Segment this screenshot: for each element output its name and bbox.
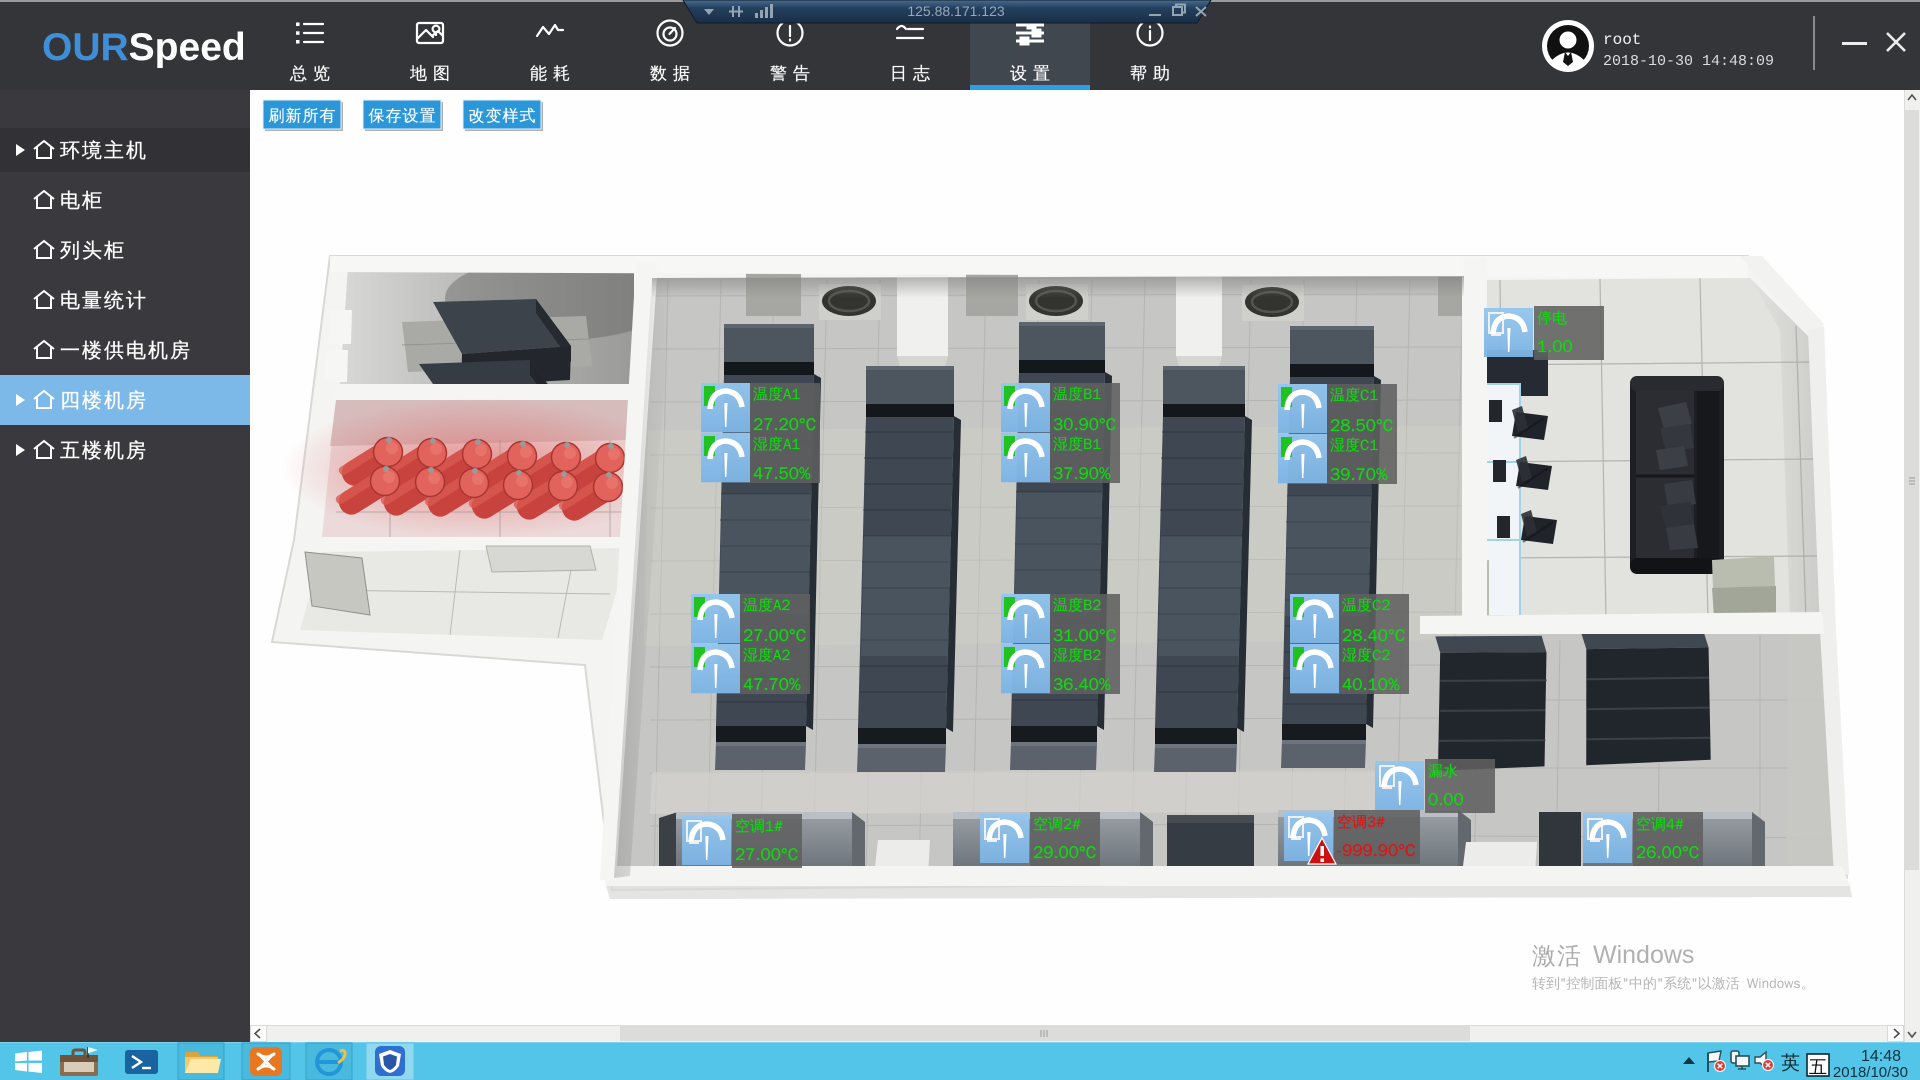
svg-text:125.88.171.123: 125.88.171.123	[907, 3, 1005, 19]
svg-text:Windows: Windows	[1593, 941, 1694, 969]
svg-text:2018/10/30: 2018/10/30	[1833, 1064, 1908, 1080]
svg-text:14:48: 14:48	[1861, 1048, 1901, 1065]
